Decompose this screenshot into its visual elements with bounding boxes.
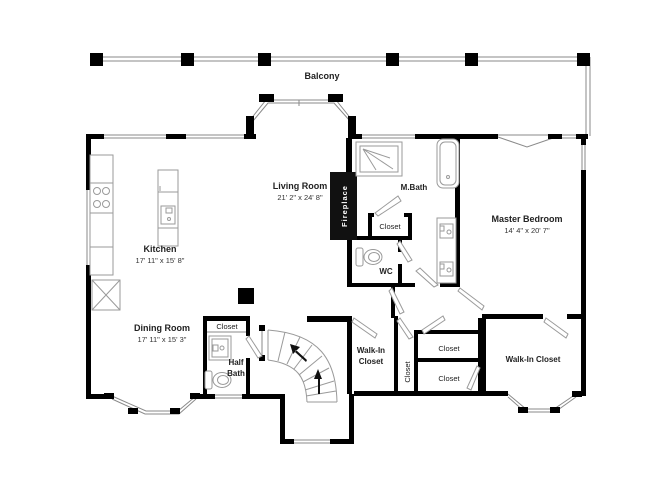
door-bath-corridor [416, 268, 438, 287]
dining-room-label: Dining Room [134, 323, 190, 333]
door-mbath-closet [375, 196, 401, 216]
walkin-mid-label-2: Closet [359, 357, 384, 366]
stove-icon [90, 183, 113, 213]
door-closet-vertical [397, 318, 413, 339]
living-room-dims: 21' 2" x 24' 8" [277, 193, 323, 202]
half-bath-label-2: Bath [227, 369, 245, 378]
upper-closet-label: Closet [438, 344, 460, 353]
floor-plan-canvas: Fireplace [0, 0, 667, 500]
master-bedroom-label: Master Bedroom [491, 214, 562, 224]
toilet-icon [205, 371, 212, 389]
fireplace: Fireplace [330, 172, 357, 240]
door-master-bedroom [458, 288, 484, 310]
half-bath-label-1: Half [228, 358, 243, 367]
vertical-closet-label: Closet [403, 360, 412, 382]
living-room-label: Living Room [273, 181, 328, 191]
shower-icon [356, 142, 402, 176]
kitchen-fixtures [90, 155, 178, 310]
door-walkin-right [544, 318, 568, 338]
fireplace-label: Fireplace [340, 185, 349, 227]
half-bath-fixtures [205, 336, 231, 389]
balcony-label: Balcony [304, 71, 339, 81]
counter [90, 155, 113, 275]
curved-stairs-icon [268, 330, 337, 402]
floor-plan-page: Fireplace [0, 0, 667, 500]
half-bath-closet-label: Closet [216, 322, 238, 331]
walkin-right-label: Walk-In Closet [506, 355, 561, 364]
door-walkin-mid [352, 318, 377, 338]
kitchen-dims: 17' 11" x 15' 8" [136, 256, 185, 265]
master-bath-label: M.Bath [401, 183, 428, 192]
lower-closet-label: Closet [438, 374, 460, 383]
mbath-closet-label: Closet [379, 222, 401, 231]
master-bedroom-dims: 14' 4" x 20' 7" [504, 226, 550, 235]
wc-label: WC [379, 267, 393, 276]
dining-room-dims: 17' 11" x 15' 3" [138, 335, 187, 344]
walkin-mid-label-1: Walk-In [357, 346, 385, 355]
door-half-bath [246, 336, 262, 358]
kitchen-label: Kitchen [143, 244, 176, 254]
toilet-icon [356, 248, 363, 266]
